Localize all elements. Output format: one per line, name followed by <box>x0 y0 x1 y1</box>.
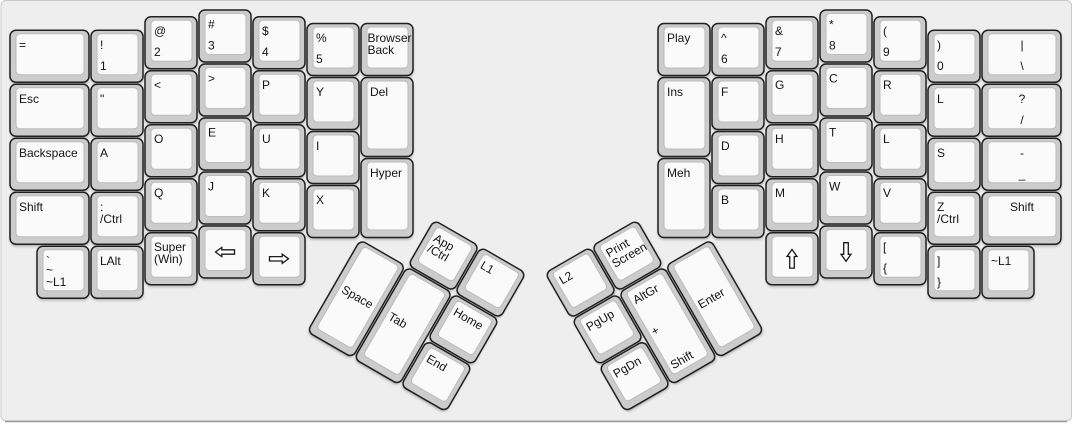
svg-text:6: 6 <box>721 52 728 66</box>
svg-text:=: = <box>19 38 26 52</box>
svg-text:M: M <box>775 186 785 200</box>
svg-text:%: % <box>316 31 327 45</box>
svg-text:@: @ <box>154 24 166 38</box>
svg-text:/Ctrl: /Ctrl <box>937 212 959 226</box>
svg-text:Shift: Shift <box>1010 200 1035 214</box>
svg-text:Meh: Meh <box>667 166 690 180</box>
svg-text:Shift: Shift <box>19 200 44 214</box>
svg-text:": " <box>100 92 104 106</box>
svg-text:Backspace: Backspace <box>19 146 78 160</box>
svg-text:1: 1 <box>100 59 107 73</box>
svg-text:H: H <box>775 132 784 146</box>
svg-text:^: ^ <box>721 31 727 45</box>
svg-text:7: 7 <box>775 45 782 59</box>
svg-text:~L1: ~L1 <box>991 254 1012 268</box>
svg-text:I: I <box>316 139 319 153</box>
svg-text:W: W <box>829 180 841 194</box>
svg-text:Back: Back <box>368 43 396 57</box>
svg-text:C: C <box>829 72 838 86</box>
svg-text:<: < <box>154 78 161 92</box>
svg-text:*: * <box>829 18 834 32</box>
svg-text:5: 5 <box>316 52 323 66</box>
svg-text:P: P <box>262 78 270 92</box>
svg-text:L: L <box>883 132 890 146</box>
svg-text:#: # <box>208 18 215 32</box>
svg-text:E: E <box>208 126 216 140</box>
svg-text:/Ctrl: /Ctrl <box>100 212 122 226</box>
svg-text:J: J <box>208 180 214 194</box>
svg-text:Q: Q <box>154 186 163 200</box>
svg-text:-: - <box>1020 146 1024 160</box>
svg-text:Del: Del <box>370 85 388 99</box>
svg-text:A: A <box>100 146 108 160</box>
svg-text:2: 2 <box>154 45 161 59</box>
svg-text:Esc: Esc <box>19 92 39 106</box>
svg-text:S: S <box>937 146 945 160</box>
svg-text:V: V <box>883 186 891 200</box>
svg-text:0: 0 <box>937 59 944 73</box>
svg-text:]: ] <box>937 254 940 268</box>
svg-text:(: ( <box>883 24 887 38</box>
svg-text:|: | <box>1020 38 1023 52</box>
svg-text:L: L <box>937 92 944 106</box>
svg-text:?: ? <box>1019 92 1026 106</box>
svg-text:T: T <box>829 126 837 140</box>
svg-text:F: F <box>721 85 728 99</box>
svg-text:LAlt: LAlt <box>100 254 121 268</box>
svg-text:G: G <box>775 78 784 92</box>
svg-text:Hyper: Hyper <box>370 166 402 180</box>
svg-text:U: U <box>262 132 271 146</box>
svg-text:Play: Play <box>667 31 690 45</box>
svg-text:Y: Y <box>316 85 324 99</box>
svg-text:): ) <box>937 38 941 52</box>
svg-text:}: } <box>937 275 941 289</box>
svg-text:_: _ <box>1018 167 1026 181</box>
svg-text:~L1: ~L1 <box>46 275 67 289</box>
svg-text:!: ! <box>100 38 103 52</box>
svg-text:9: 9 <box>883 45 890 59</box>
svg-text:B: B <box>721 193 729 207</box>
svg-text:3: 3 <box>208 39 215 53</box>
svg-text:R: R <box>883 78 892 92</box>
svg-text:4: 4 <box>262 45 269 59</box>
svg-text:D: D <box>721 139 730 153</box>
svg-text:&: & <box>775 24 783 38</box>
svg-text:8: 8 <box>829 39 836 53</box>
svg-text:$: $ <box>262 24 269 38</box>
svg-text:Ins: Ins <box>667 85 683 99</box>
svg-text:X: X <box>316 193 324 207</box>
svg-text:{: { <box>883 261 887 275</box>
svg-text:O: O <box>154 132 163 146</box>
svg-text:>: > <box>208 72 215 86</box>
svg-text:(Win): (Win) <box>154 252 183 266</box>
svg-text:K: K <box>262 186 270 200</box>
